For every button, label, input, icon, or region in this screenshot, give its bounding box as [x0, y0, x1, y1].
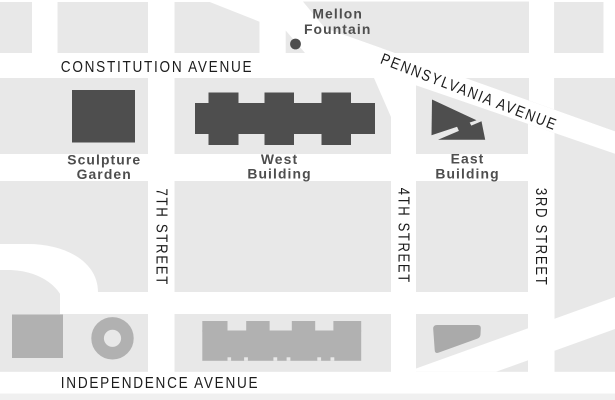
svg-text:4TH STREET: 4TH STREET: [395, 188, 412, 284]
svg-text:Mellon: Mellon: [312, 5, 363, 21]
svg-text:7TH STREET: 7TH STREET: [152, 189, 169, 287]
svg-text:Sculpture: Sculpture: [67, 151, 141, 167]
svg-text:Garden: Garden: [77, 166, 132, 182]
svg-text:Fountain: Fountain: [304, 21, 371, 37]
svg-text:West: West: [261, 151, 298, 167]
svg-text:CONSTITUTION AVENUE: CONSTITUTION AVENUE: [61, 59, 254, 76]
svg-text:Building: Building: [247, 166, 311, 182]
svg-text:3RD STREET: 3RD STREET: [532, 188, 549, 287]
svg-text:Building: Building: [435, 165, 499, 181]
svg-text:East: East: [451, 151, 485, 167]
svg-text:INDEPENDENCE AVENUE: INDEPENDENCE AVENUE: [61, 375, 259, 392]
